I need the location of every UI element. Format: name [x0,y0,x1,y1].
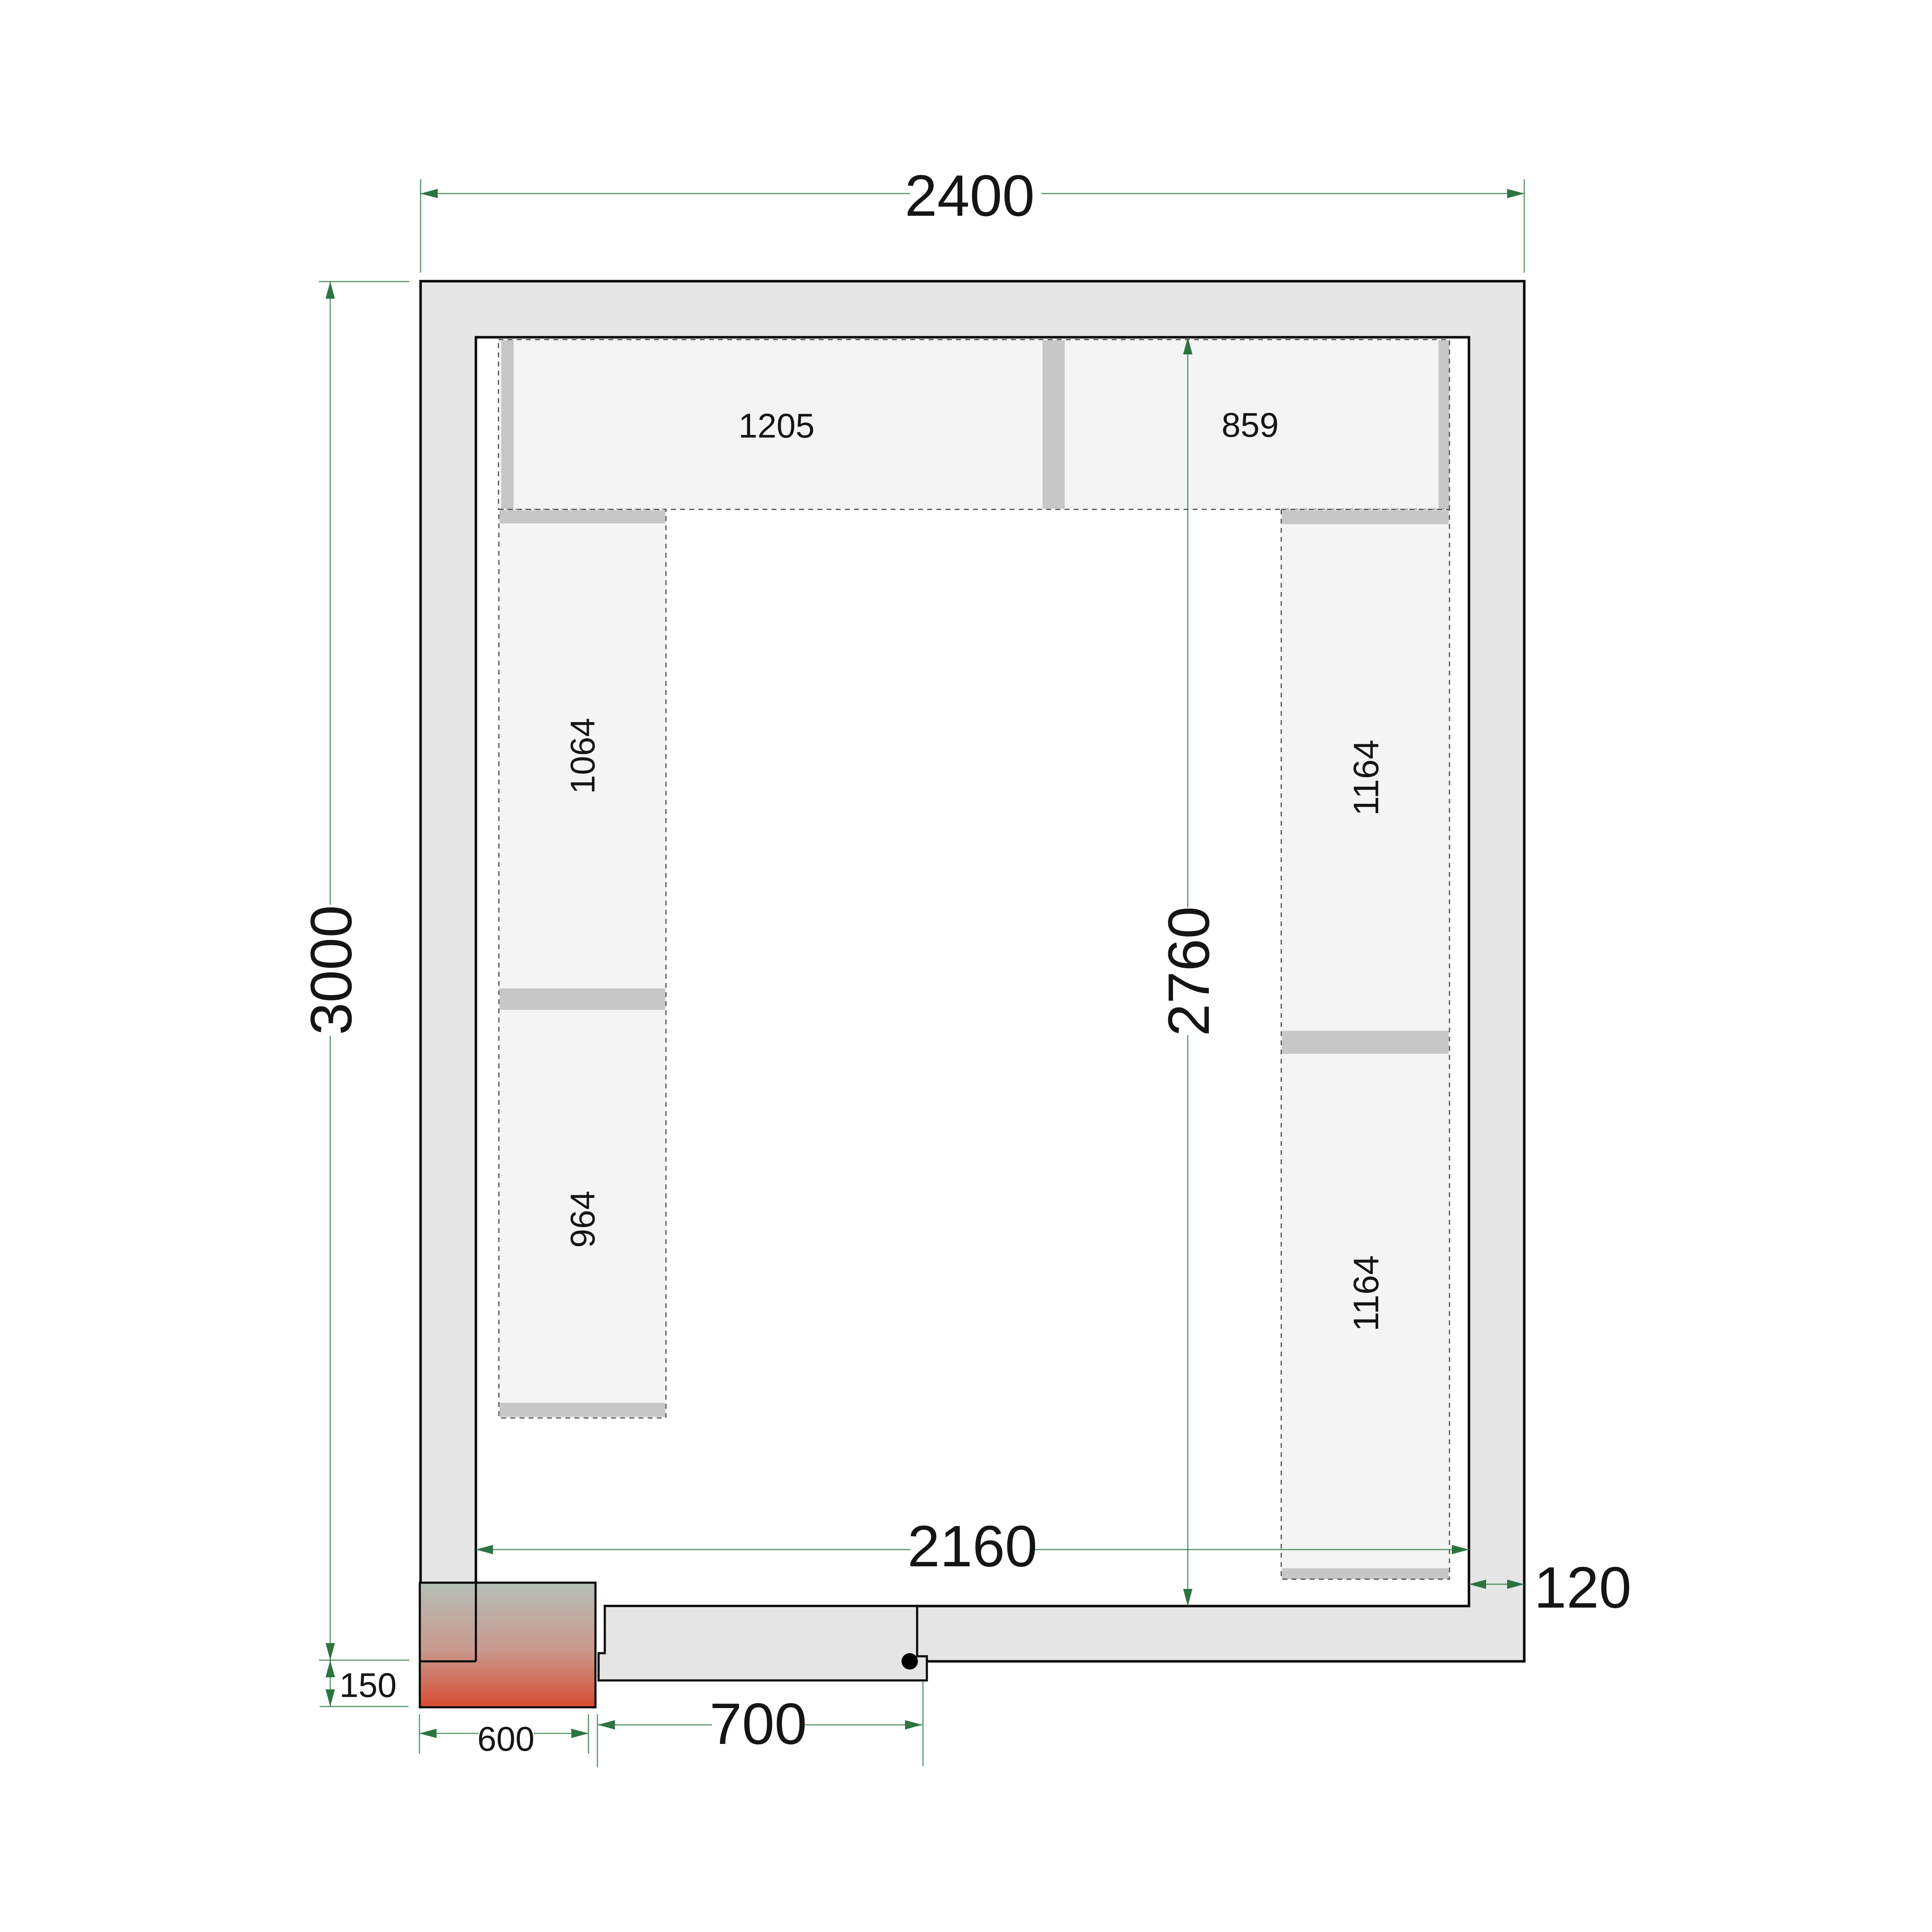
svg-text:3000: 3000 [298,905,364,1035]
svg-text:1064: 1064 [564,718,602,794]
svg-text:1164: 1164 [1347,1255,1386,1331]
svg-text:2400: 2400 [905,163,1035,228]
svg-text:150: 150 [340,1666,397,1705]
svg-text:1164: 1164 [1347,740,1386,816]
svg-text:700: 700 [710,1691,807,1756]
svg-text:2160: 2160 [907,1513,1037,1579]
svg-text:2760: 2760 [1156,906,1221,1036]
svg-text:120: 120 [1534,1555,1631,1620]
svg-text:1205: 1205 [738,407,815,445]
svg-text:859: 859 [1222,406,1279,444]
svg-text:600: 600 [477,1720,535,1758]
svg-text:964: 964 [564,1191,602,1248]
